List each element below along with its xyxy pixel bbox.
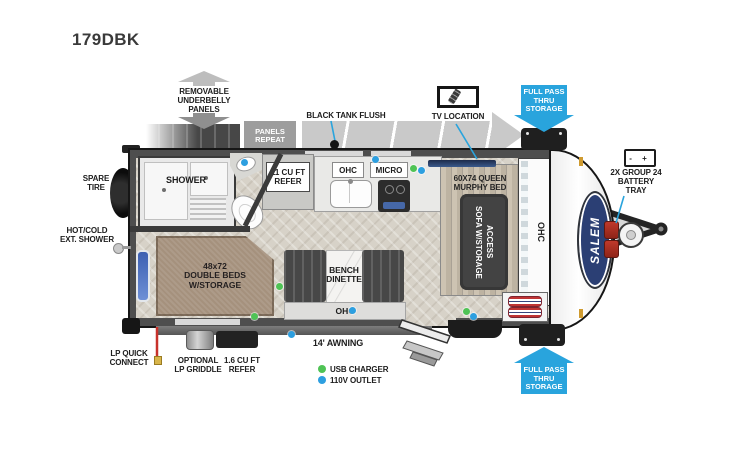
legend-usb-label: USB CHARGER bbox=[330, 365, 410, 374]
ext-shower-valve-stem bbox=[122, 246, 131, 249]
underbelly-up-arrow-icon bbox=[178, 71, 230, 82]
marker-light-icon bbox=[579, 157, 583, 166]
black-tank-flush-label: BLACK TANK FLUSH bbox=[296, 111, 396, 120]
wardrobe-mirror-strip bbox=[521, 161, 528, 299]
dinette-label: BENCH DINETTE bbox=[314, 266, 374, 284]
bath-wall bbox=[130, 226, 250, 232]
pass-thru-bottom-label: FULL PASS THRU STORAGE bbox=[521, 363, 567, 394]
power-outlet-dot bbox=[372, 156, 379, 163]
legend-usb-dot bbox=[318, 365, 326, 373]
refrigerator-label-box: 11 CU FT REFER bbox=[266, 162, 310, 192]
lp-griddle bbox=[186, 330, 214, 350]
rear-bumper-corner bbox=[122, 318, 140, 334]
spare-tire-label: SPARE TIRE bbox=[72, 174, 120, 192]
floorplan-diagram: 179DBK REMOVABLE UNDERBELLY PANELS PANEL… bbox=[0, 0, 731, 469]
sofa-label: SOFA W/STORAGE ACCESS bbox=[473, 206, 495, 279]
tongue-jack-wheel bbox=[618, 222, 644, 248]
underbelly-panels-label: REMOVABLE UNDERBELLY PANELS bbox=[168, 87, 240, 114]
shower: SHOWER bbox=[138, 156, 236, 228]
brand-badge-label: SALEM bbox=[588, 217, 602, 264]
usb-charger-dot bbox=[410, 165, 417, 172]
lp-connector-tip bbox=[154, 356, 162, 365]
front-ohc-label: OHC bbox=[536, 222, 546, 242]
shower-label: SHOWER bbox=[150, 176, 222, 185]
tv-icon bbox=[437, 86, 479, 108]
microwave-label: MICRO bbox=[376, 166, 403, 175]
dinette-ohc-band: OHC bbox=[284, 302, 406, 320]
power-outlet-dot bbox=[241, 159, 248, 166]
faucet-icon bbox=[348, 179, 353, 184]
wheel-fender bbox=[448, 320, 502, 338]
ext-shower-label: HOT/COLD EXT. SHOWER bbox=[42, 226, 132, 244]
awning-label: 14' AWNING bbox=[296, 339, 380, 348]
pass-thru-top-label: FULL PASS THRU STORAGE bbox=[521, 85, 567, 115]
pass-thru-top-arrowhead-icon bbox=[514, 115, 574, 132]
sofa: SOFA W/STORAGE ACCESS bbox=[460, 194, 508, 290]
tv-remote-icon bbox=[448, 88, 462, 104]
trailer-body: SHOWER 11 CU FT REFER OHC MICRO bbox=[128, 148, 556, 328]
small-refrigerator bbox=[216, 331, 258, 348]
underbelly-up-arrow-stem bbox=[193, 82, 215, 86]
battery-tray-label: 2X GROUP 24 BATTERY TRAY bbox=[604, 168, 668, 195]
kitchen-ohc-label: OHC bbox=[339, 166, 357, 175]
shower-drain-icon bbox=[162, 188, 166, 192]
usb-charger-dot bbox=[463, 308, 470, 315]
power-outlet-dot bbox=[418, 167, 425, 174]
tv-mount-bar bbox=[428, 160, 496, 167]
propane-tank bbox=[604, 221, 619, 239]
kitchen-ohc-box: OHC bbox=[332, 162, 364, 178]
storage-cubby bbox=[502, 292, 548, 322]
power-outlet-dot bbox=[288, 331, 295, 338]
panels-repeat-box: PANELS REPEAT bbox=[244, 121, 296, 150]
double-beds-label: 48x72 DOUBLE BEDS W/STORAGE bbox=[184, 262, 246, 291]
stored-item bbox=[508, 296, 542, 307]
kitchen-sink bbox=[330, 180, 372, 208]
microwave-box: MICRO bbox=[370, 162, 408, 178]
usb-charger-dot bbox=[251, 313, 258, 320]
battery-icon-text: - + bbox=[629, 154, 651, 163]
tv-location-label: TV LOCATION bbox=[425, 112, 491, 121]
pass-thru-bottom-arrowhead-icon bbox=[514, 347, 574, 363]
double-beds: 48x72 DOUBLE BEDS W/STORAGE bbox=[156, 236, 274, 316]
power-outlet-dot bbox=[470, 313, 477, 320]
pass-thru-hatch-bottom bbox=[519, 324, 565, 346]
stove bbox=[378, 180, 410, 212]
legend-outlet-label: 110V OUTLET bbox=[330, 376, 410, 385]
marker-light-icon-2 bbox=[579, 309, 583, 318]
legend-outlet-dot bbox=[318, 376, 326, 384]
page-title: 179DBK bbox=[72, 30, 140, 50]
propane-tank-2 bbox=[604, 240, 619, 258]
black-tank-flush-dot bbox=[330, 140, 339, 149]
power-outlet-dot bbox=[349, 307, 356, 314]
bottom-window bbox=[175, 319, 240, 325]
stored-item-2 bbox=[508, 307, 542, 318]
rear-window bbox=[136, 250, 150, 302]
panels-repeat-label: PANELS REPEAT bbox=[255, 128, 285, 144]
murphy-bed-label: 60X74 QUEEN MURPHY BED bbox=[442, 174, 518, 192]
usb-charger-dot bbox=[276, 283, 283, 290]
shower-mat bbox=[190, 198, 226, 220]
refrigerator-label: 11 CU FT REFER bbox=[271, 168, 305, 186]
battery-icon: - + bbox=[624, 149, 656, 167]
small-refrigerator-label: 1.6 CU FT REFER bbox=[218, 356, 266, 374]
underbelly-down-arrow-icon bbox=[178, 117, 230, 129]
